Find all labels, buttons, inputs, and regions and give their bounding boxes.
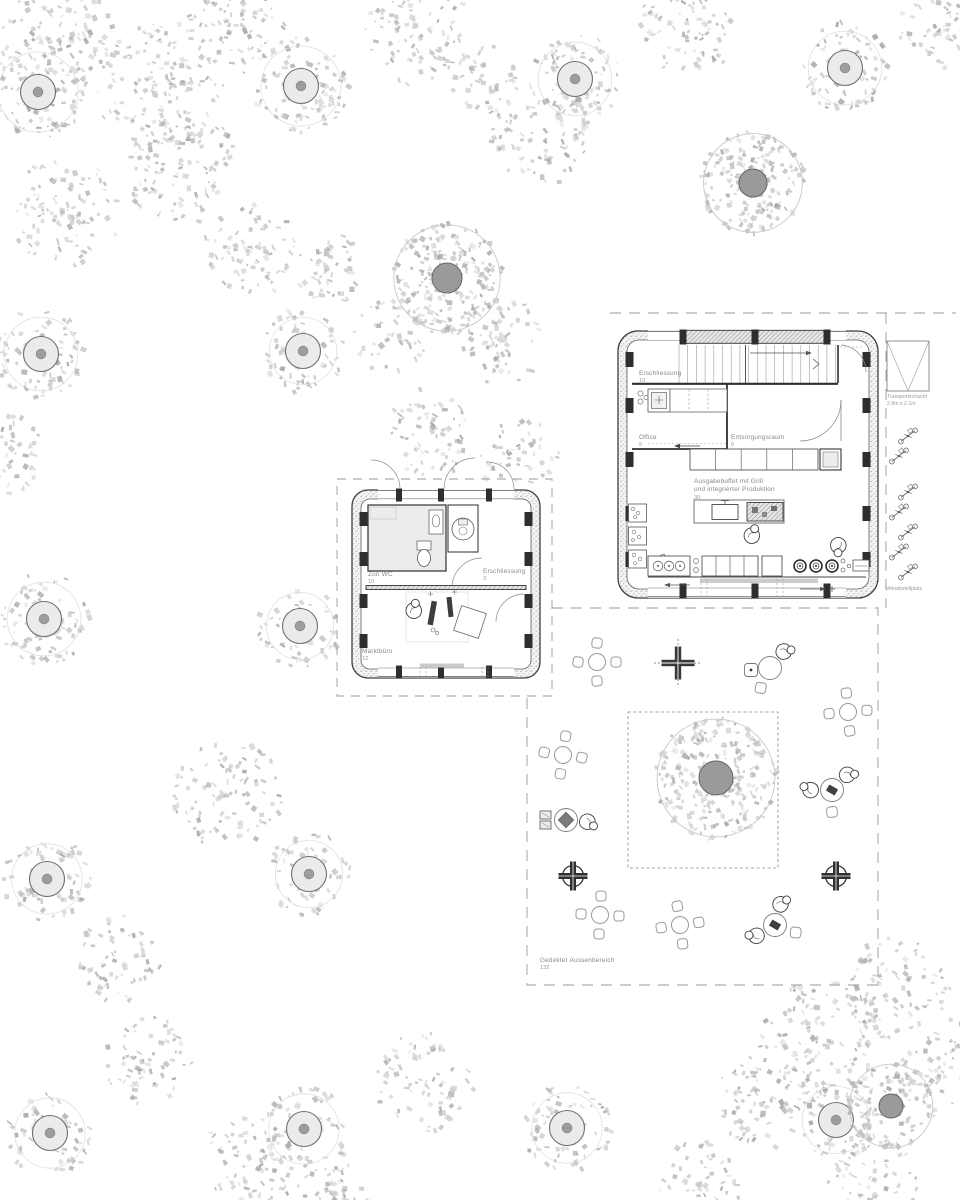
canopy-cluster: [0, 413, 40, 495]
room-number-entsorgungsraum: 6: [731, 442, 734, 448]
canopy-cluster: [204, 202, 296, 295]
room-number-office: 5: [639, 442, 642, 448]
label-transportschacht-dim: 2.8m x 2.1m: [887, 401, 916, 407]
tree-small: [254, 36, 352, 135]
bike-icon: [896, 561, 919, 581]
canopy-cluster: [480, 418, 561, 498]
table-set-four-chairs: [575, 889, 626, 940]
tree-small: [0, 41, 86, 137]
cross-marker: [654, 639, 702, 687]
bike-icon: [887, 501, 910, 521]
circled-cross-marker: [822, 862, 851, 891]
canopy-cluster: [638, 0, 734, 71]
round-table-with-people: [745, 639, 797, 694]
bike-icon: [887, 541, 910, 561]
canopy-cluster: [364, 0, 466, 87]
canopy-cluster: [659, 1139, 741, 1200]
canopy-cluster: [845, 936, 952, 1039]
tree-small: [529, 35, 619, 125]
tree-large: [392, 221, 505, 335]
number-aussenbereich: 132: [540, 965, 549, 971]
kitchen-cabinets: [690, 449, 841, 470]
table-set-four-chairs: [653, 898, 708, 953]
room-label-erschliessung-hall: Erschliessung: [639, 370, 682, 377]
partition-wall: [366, 586, 526, 590]
canopy-cluster: [97, 22, 224, 147]
canopy-cluster: [187, 0, 287, 74]
entry-door-arcs: [371, 458, 514, 489]
room-label-entsorgungsraum: Entsorgungsraum: [731, 434, 784, 441]
pavilion-plan: Züri WC 10 Erschliessung 3 Marktbüro 12: [352, 458, 540, 679]
label-veloabstellplatz: Veloabstellplatz: [886, 586, 922, 592]
room-label-office: Office: [639, 434, 657, 441]
canopy-cluster: [390, 387, 466, 476]
annex-transport-velo: Transportschacht 2.8m x 2.1m Veloabstell…: [886, 341, 929, 592]
label-transportschacht: Transportschacht: [887, 394, 927, 400]
canopy-cluster: [172, 743, 283, 844]
tree-small: [802, 19, 891, 111]
table-set-four-chairs: [572, 638, 621, 687]
canopy-cluster: [78, 913, 162, 1003]
tree-small: [256, 589, 340, 668]
tree-small: [265, 308, 346, 395]
circled-cross-marker: [559, 862, 588, 891]
canopy-cluster: [826, 1143, 918, 1200]
tree-small: [6, 1092, 92, 1171]
room-label-erschliessung-pavilion: Erschliessung: [483, 568, 526, 575]
person-figure: [578, 813, 598, 832]
shaft-cell: [448, 505, 478, 552]
canopy-cluster: [284, 234, 358, 302]
tree-large: [699, 129, 807, 236]
bike-icon: [896, 521, 919, 541]
room-label-buffet-line2: und integrierter Produktion: [694, 486, 775, 493]
round-table-with-people: [799, 763, 860, 818]
bike-icon: [896, 425, 919, 445]
room-number-buffet: 30: [694, 495, 700, 501]
table-set-four-chairs: [535, 728, 590, 783]
wc-room: [368, 505, 446, 571]
canopy-cluster: [721, 1055, 807, 1150]
canopy-cluster: [15, 160, 119, 268]
tree-small: [0, 311, 87, 400]
room-label-buffet-line1: Ausgabebuffet mit Grill: [694, 478, 763, 485]
site-plan-drawing: Erschliessung 10 Office 5 Entsorgungsrau…: [0, 0, 960, 1200]
tree-small: [270, 834, 351, 917]
canopy-cluster: [447, 45, 518, 115]
room-number-erschliessung-hall: 10: [639, 378, 645, 384]
room-number-erschliessung-pavilion: 3: [483, 576, 486, 582]
bike-parking: [887, 425, 919, 581]
canopy-cluster: [898, 0, 960, 71]
room-number-zueri-wc: 10: [368, 579, 374, 585]
person-figure: [799, 779, 820, 799]
canopy-cluster: [376, 1032, 476, 1134]
site-plan: Erschliessung 10 Office 5 Entsorgungsrau…: [0, 0, 960, 1200]
buffet-island: [694, 500, 784, 523]
tree-small: [2, 842, 92, 921]
table-set-four-chairs: [822, 686, 875, 739]
tree-large: [654, 716, 780, 841]
tree-small: [524, 1086, 614, 1173]
round-table-with-people: [743, 893, 801, 948]
transport-shaft: [887, 341, 929, 391]
room-label-marktbuero: Marktbüro: [362, 648, 393, 655]
bike-icon: [887, 445, 910, 465]
toilet: [418, 550, 431, 567]
label-aussenbereich: Gedekter Aussenbereich: [540, 957, 615, 964]
canopy-cluster: [128, 110, 235, 224]
person-figure: [771, 893, 791, 914]
room-number-marktbuero: 12: [362, 656, 368, 662]
bike-icon: [896, 481, 919, 501]
round-table-with-people: [540, 809, 598, 832]
market-hall-plan: Erschliessung 10 Office 5 Entsorgungsrau…: [618, 330, 878, 599]
room-label-zueri-wc: Züri WC: [368, 571, 393, 578]
tree-small: [0, 574, 92, 666]
canopy-cluster: [105, 1016, 194, 1106]
